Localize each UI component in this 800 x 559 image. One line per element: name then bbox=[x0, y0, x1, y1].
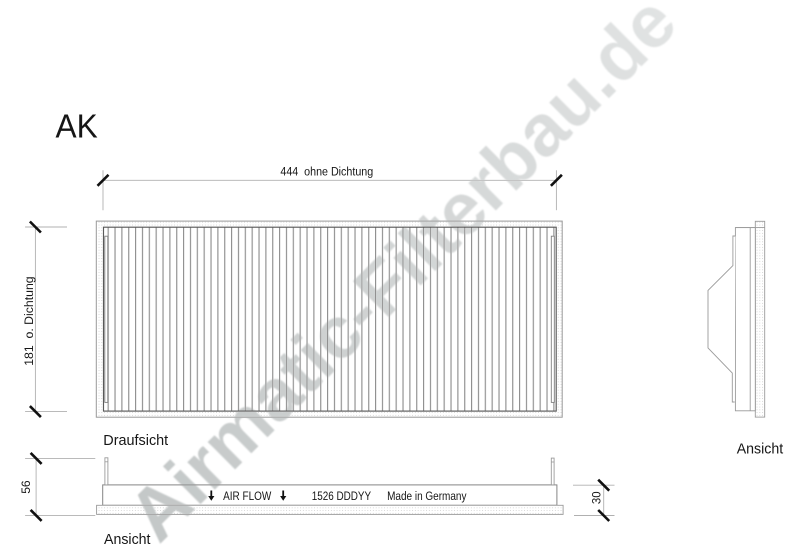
svg-text:Draufsicht: Draufsicht bbox=[103, 432, 169, 449]
svg-text:30: 30 bbox=[589, 491, 603, 504]
svg-text:444 ohne Dichtung: 444 ohne Dichtung bbox=[280, 165, 373, 179]
svg-text:AK: AK bbox=[56, 108, 98, 145]
svg-text:Ansicht: Ansicht bbox=[737, 440, 784, 457]
svg-text:Made in Germany: Made in Germany bbox=[387, 489, 467, 503]
svg-text:181 o. Dichtung: 181 o. Dichtung bbox=[22, 276, 36, 365]
svg-text:1526 DDDYY: 1526 DDDYY bbox=[312, 489, 371, 503]
svg-text:56: 56 bbox=[19, 480, 33, 494]
svg-text:Ansicht: Ansicht bbox=[104, 531, 151, 548]
